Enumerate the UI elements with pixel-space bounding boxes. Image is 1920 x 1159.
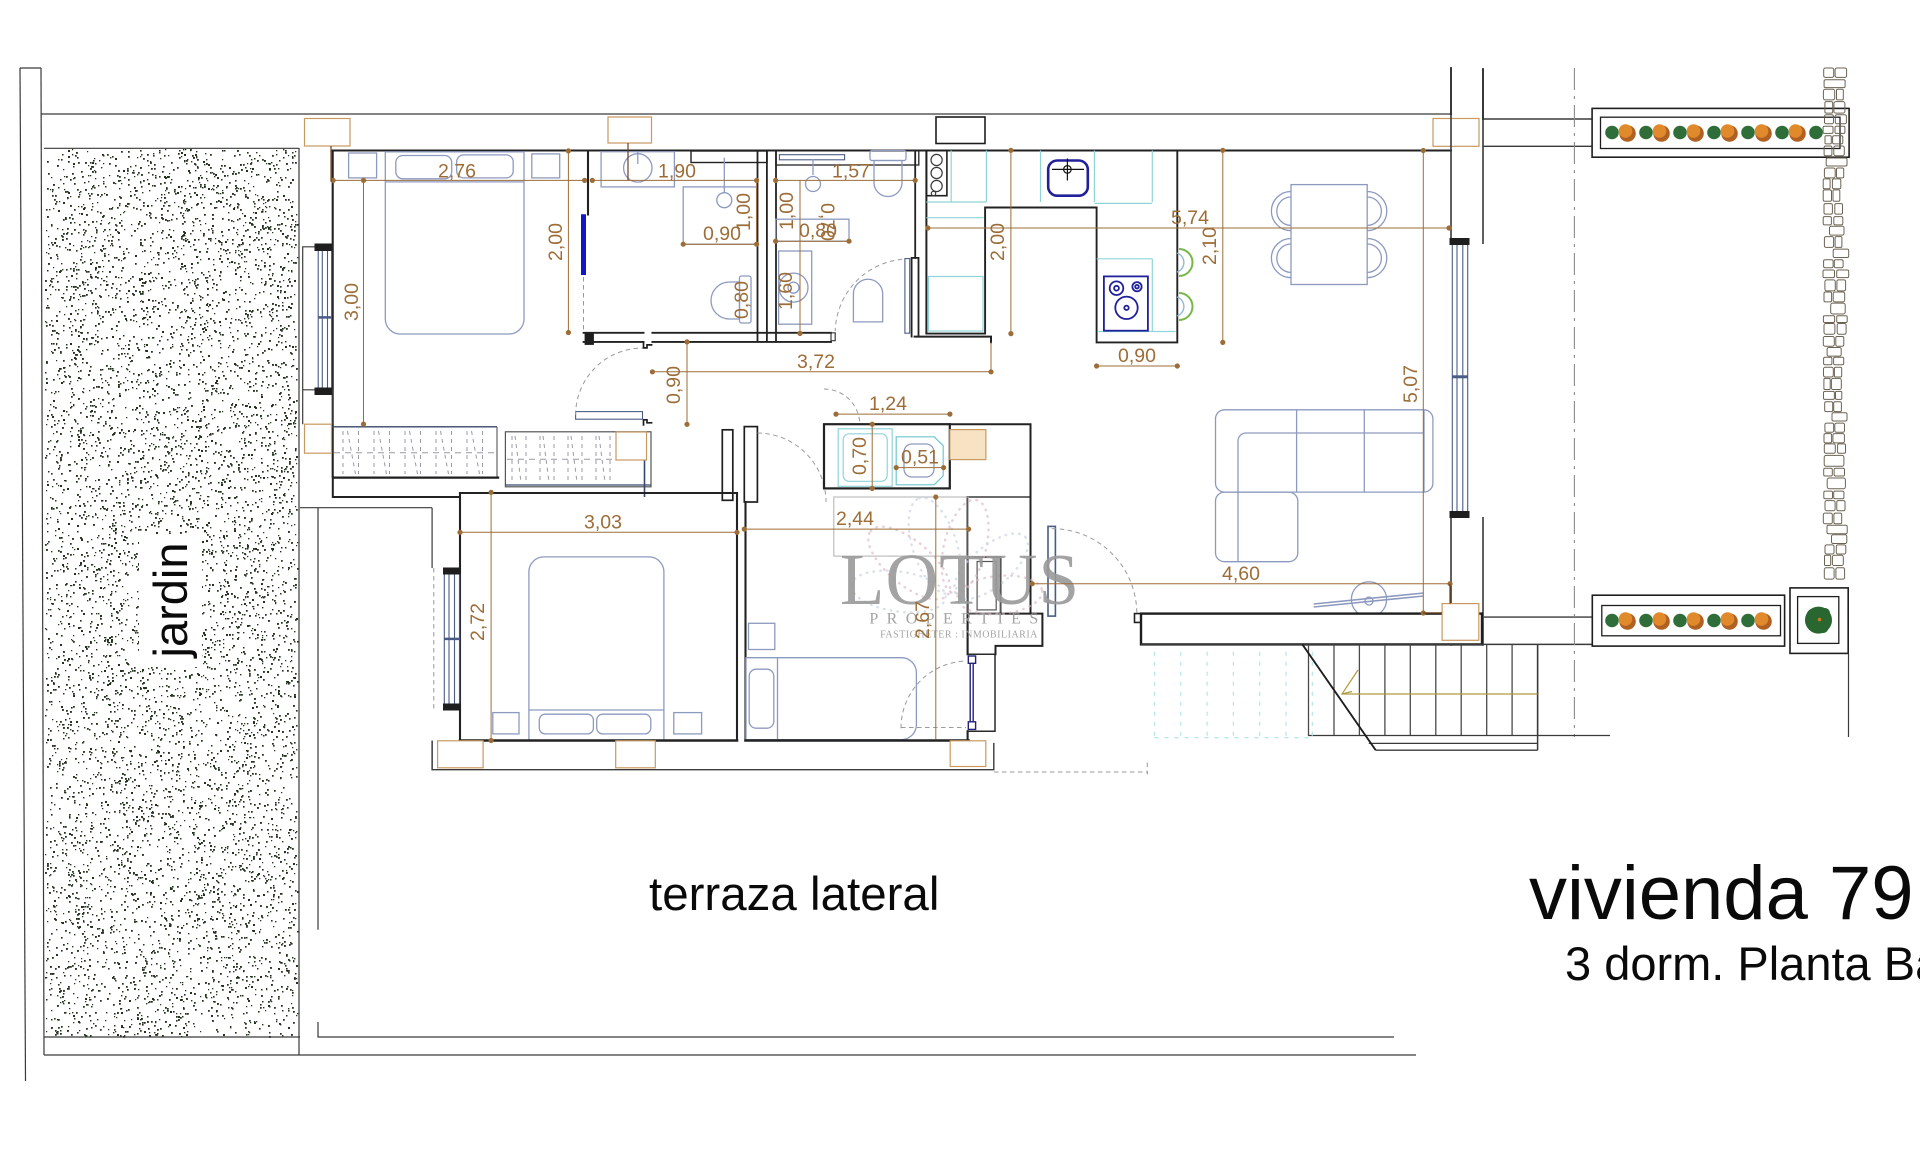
svg-text:3 dorm. Planta Baja: 3 dorm. Planta Baja [1565,937,1920,990]
svg-text:jardin: jardin [144,543,197,660]
svg-text:1,60: 1,60 [775,272,797,310]
svg-text:3,00: 3,00 [341,283,363,321]
svg-text:4,60: 4,60 [1222,563,1260,585]
svg-text:1,90: 1,90 [658,161,696,183]
svg-text:2,44: 2,44 [836,508,874,530]
svg-text:3,03: 3,03 [584,512,622,534]
svg-text:2,67: 2,67 [912,601,934,639]
svg-text:2,76: 2,76 [438,161,476,183]
svg-text:PROPERTIES: PROPERTIES [869,611,1046,628]
svg-text:2,00: 2,00 [545,223,567,261]
svg-text:0,90: 0,90 [703,223,741,245]
svg-text:5,07: 5,07 [1400,365,1422,403]
svg-text:0,90: 0,90 [1118,345,1156,367]
svg-text:1,24: 1,24 [869,393,907,415]
svg-text:0,70: 0,70 [816,203,838,241]
svg-text:3,72: 3,72 [797,351,835,373]
svg-text:2,72: 2,72 [467,603,489,641]
svg-text:FASTIGHETER : INMOBILIARIA: FASTIGHETER : INMOBILIARIA [880,630,1038,641]
svg-text:1,00: 1,00 [776,192,798,230]
svg-text:0,90: 0,90 [663,366,685,404]
svg-text:0,51: 0,51 [901,447,939,469]
svg-text:vivienda 79 m: vivienda 79 m [1529,851,1920,936]
svg-text:2,10: 2,10 [1199,227,1221,265]
svg-text:0,70: 0,70 [849,437,871,475]
svg-text:LOTUS: LOTUS [840,539,1080,620]
svg-text:terraza lateral: terraza lateral [649,868,939,921]
svg-text:0,80: 0,80 [731,281,753,319]
svg-text:5,74: 5,74 [1171,207,1209,229]
svg-text:1,57: 1,57 [832,161,870,183]
svg-text:2,00: 2,00 [987,223,1009,261]
